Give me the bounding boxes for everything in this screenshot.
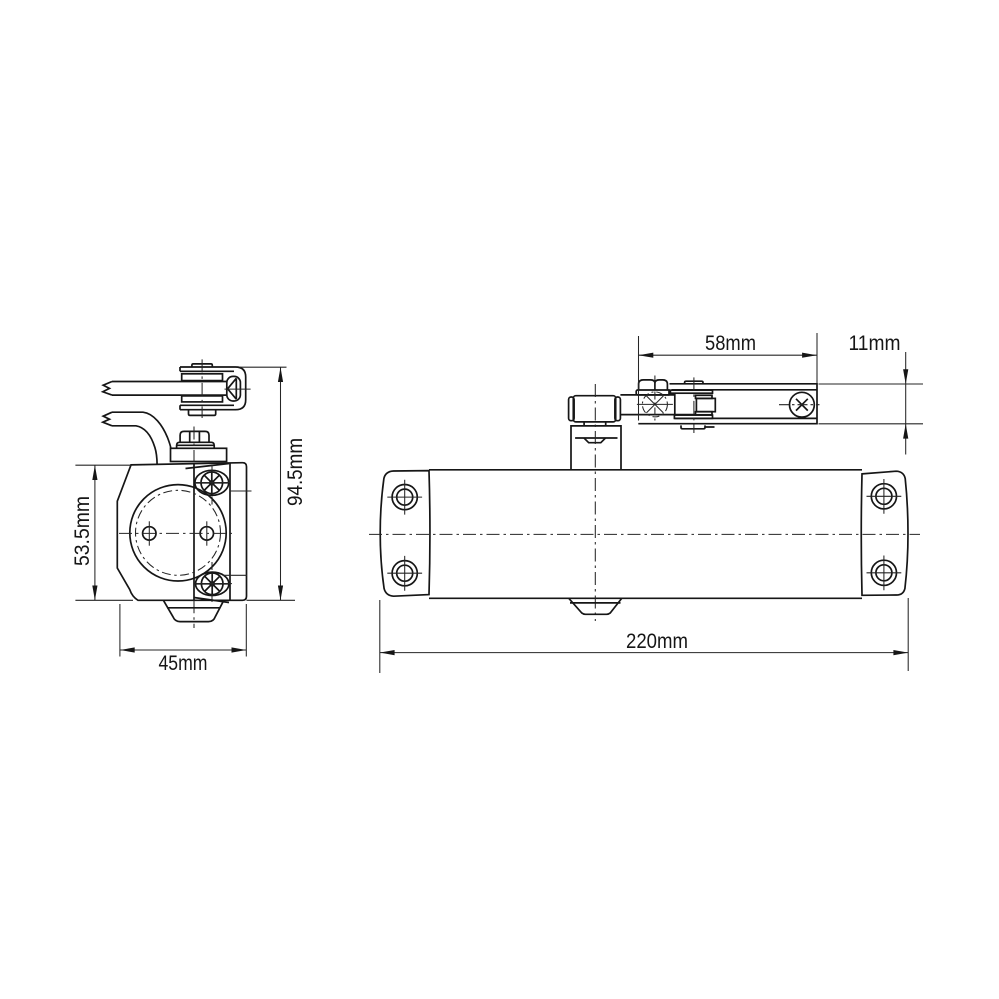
- svg-text:220mm: 220mm: [626, 630, 688, 653]
- svg-text:45mm: 45mm: [159, 652, 208, 675]
- svg-text:58mm: 58mm: [705, 332, 756, 355]
- svg-text:94.5mm: 94.5mm: [284, 438, 307, 506]
- svg-text:53.5mm: 53.5mm: [71, 496, 94, 566]
- svg-text:11mm: 11mm: [849, 332, 901, 355]
